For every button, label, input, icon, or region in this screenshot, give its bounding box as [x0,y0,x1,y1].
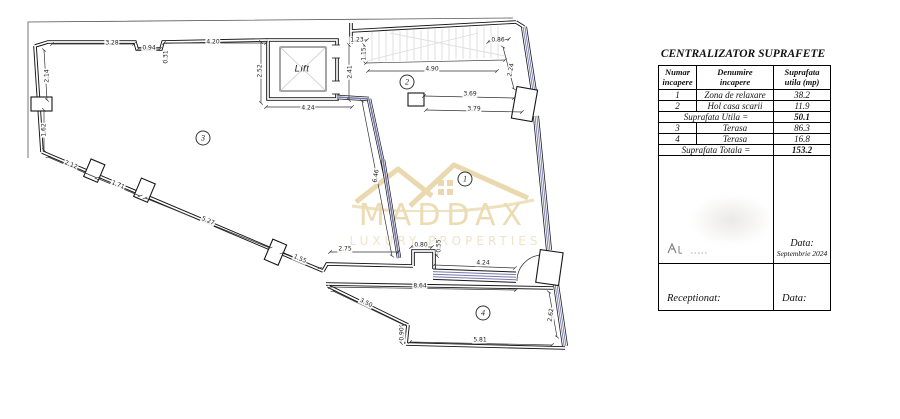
room-name-cell: Zona de relaxare [697,90,774,101]
table-row: 4 Terasa 16.8 [659,134,831,145]
window-band [433,269,516,282]
table-row: 2 Hol casa scarii 11.9 [659,101,831,112]
room-area-cell: 11.9 [774,101,831,112]
floor-plan-area: MADDAX LUXURY PROPERTIES [0,0,640,419]
floor-plan-svg [0,0,640,419]
table-header-row: Numarincapere Denumireincapere Suprafata… [659,66,831,90]
signature-scribble [665,239,725,257]
signature-row: Data: Septembrie 2024 [659,156,831,264]
surfaces-table: Numarincapere Denumireincapere Suprafata… [658,65,831,311]
date-cell: Data: Septembrie 2024 [774,156,831,264]
room-area-cell: 16.8 [774,134,831,145]
room-area-cell: 38.2 [774,90,831,101]
date-label: Data: [775,238,829,249]
subtotal-label: Suprafata Utila = [659,112,774,123]
room-name-cell: Terasa [697,134,774,145]
receptionat-cell: Receptionat: [659,264,774,311]
total-row: Suprafata Totala = 153.2 [659,145,831,156]
dimension-lines [44,39,557,345]
stairs-hatch [366,26,505,63]
table-row: 3 Terasa 86.3 [659,123,831,134]
total-value: 153.2 [774,145,831,156]
total-label: Suprafata Totala = [659,145,774,156]
header-numar: Numarincapere [659,66,697,90]
room-number-cell: 4 [659,134,697,145]
room-number-cell: 2 [659,101,697,112]
table-row: 1 Zona de relaxare 38.2 [659,90,831,101]
room-number-cell: 3 [659,123,697,134]
glazed-wall [524,27,565,346]
lift-shaft [280,45,340,94]
room-number-cell: 1 [659,90,697,101]
room-name-cell: Hol casa scarii [697,101,774,112]
glazed-partition [337,97,399,258]
table-title: CENTRALIZATOR SUPRAFETE [652,48,834,60]
header-suprafata: Suprafatautila (mp) [774,66,831,90]
subtotal-row: Suprafata Utila = 50.1 [659,112,831,123]
signature-cell [659,156,774,264]
header-text: incapere [662,77,692,87]
reception-row: Receptionat: Data: [659,264,831,311]
room-area-cell: 86.3 [774,123,831,134]
subtotal-value: 50.1 [774,112,831,123]
header-denumire: Denumireincapere [697,66,774,90]
date-value: Septembrie 2024 [775,249,829,258]
pillars [31,87,563,286]
header-text: incapere [720,77,750,87]
floorplan-document: MADDAX LUXURY PROPERTIES [0,0,900,419]
room-name-cell: Terasa [697,123,774,134]
bottom-date-cell: Data: [774,264,831,311]
header-text: utila (mp) [785,77,820,87]
surfaces-panel: CENTRALIZATOR SUPRAFETE Numarincapere De… [652,48,834,311]
